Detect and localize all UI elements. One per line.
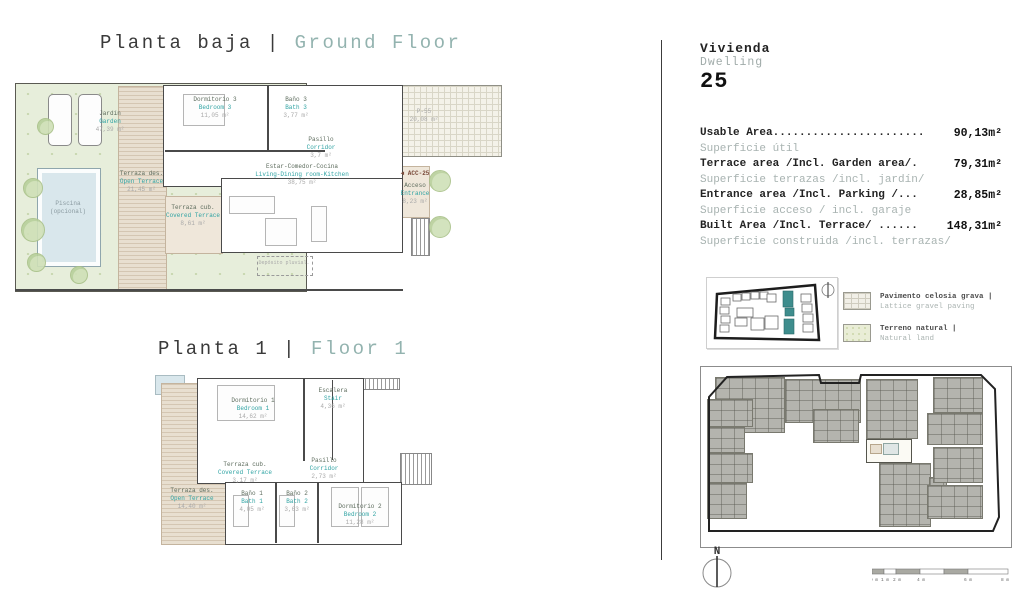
- scale-tick: 6 m: [964, 577, 972, 583]
- brochure-page: Planta baja | Ground Floor: [0, 0, 1024, 592]
- title-separator: |: [253, 32, 295, 54]
- room-label-p55: P-55 20,08 m²: [393, 108, 455, 124]
- building-cluster: [707, 453, 753, 483]
- sofa-furniture: [229, 196, 275, 214]
- railing-top: [360, 378, 400, 390]
- scale-tick: 4 m: [917, 577, 925, 583]
- floor1-plan: Dormitorio 1 Bedroom 1 14,62 m² Escalera…: [155, 375, 437, 547]
- site-plan: [700, 366, 1012, 548]
- ground-floor-title: Planta baja | Ground Floor: [100, 32, 461, 54]
- dwelling-header: Vivienda Dwelling 25: [700, 41, 770, 94]
- legend-item-natural: Terreno natural | Natural land: [843, 324, 1013, 344]
- tree-icon: [37, 118, 54, 135]
- site-wall: [15, 289, 403, 291]
- area-row-es: Superficie construida /incl. terrazas/: [700, 235, 1002, 251]
- room-label-bedroom2: Dormitorio 2 Bedroom 2 11,28 m²: [327, 503, 393, 526]
- room-label-open-terrace: Terraza des. Open Terrace 21,45 m²: [114, 170, 169, 193]
- scale-tick: 0 m: [872, 577, 878, 583]
- title-es: Planta baja: [100, 32, 253, 54]
- room-label-covered-terrace: Terraza cub. Covered Terrace 8,61 m²: [161, 204, 225, 227]
- title-en: Ground Floor: [295, 32, 462, 54]
- room-label-corridor-f1: Pasillo Corridor 2,73 m²: [295, 457, 353, 480]
- scale-tick: 1 m: [881, 577, 889, 583]
- key-plan: [706, 277, 838, 349]
- plant-icon: [27, 253, 46, 272]
- legend: Pavimento celosia grava | Lattice gravel…: [843, 292, 1013, 357]
- room-label-corridor: Pasillo Corridor 3,7 m²: [295, 136, 347, 159]
- room-label-entrance: Acceso Entrance 8,23 m²: [395, 182, 435, 205]
- legend-item-lattice: Pavimento celosia grava | Lattice gravel…: [843, 292, 1013, 312]
- room-label-jardin: Jardín Garden 47,39 m²: [75, 110, 145, 133]
- room-label-stair: Escalera Stair 4,36 m²: [307, 387, 359, 410]
- plant-icon: [21, 218, 45, 242]
- title-en: Floor 1: [311, 338, 408, 360]
- area-row-es: Superficie acceso / incl. garaje: [700, 204, 1002, 220]
- floor1-title: Planta 1 | Floor 1: [158, 338, 408, 360]
- area-row: Terrace area /Incl. Garden area/.79,31m²: [700, 157, 1002, 173]
- building-cluster: [707, 483, 747, 519]
- area-row: Usable Area.......................90,13m…: [700, 126, 1002, 142]
- kitchen-furniture: [311, 206, 327, 242]
- plant-icon: [23, 178, 43, 198]
- building-cluster: [933, 447, 983, 483]
- building-cluster: [866, 379, 918, 439]
- building-cluster: [927, 413, 983, 445]
- wall: [267, 86, 269, 152]
- entrance-railing: [411, 218, 430, 256]
- balcony-railing: [400, 453, 432, 485]
- wall: [317, 483, 319, 543]
- building-cluster: [707, 427, 745, 453]
- room-label-bath1: Baño 1 Bath 1 4,05 m²: [231, 490, 273, 513]
- room-label-living: Estar-Comedor-Cocina Living-Dining room-…: [237, 163, 367, 186]
- table-furniture: [265, 218, 297, 246]
- title-separator: |: [269, 338, 311, 360]
- room-label-open-terrace-f1: Terraza des. Open Terrace 14,40 m²: [161, 487, 223, 510]
- room-label-covered-terrace-f1: Terraza cub. Covered Terrace 3,17 m²: [201, 461, 289, 484]
- wall: [303, 379, 305, 461]
- dwelling-label-en: Dwelling: [700, 56, 770, 69]
- scale-tick: 2 m: [893, 577, 901, 583]
- building-cluster: [933, 377, 983, 413]
- area-row-es: Superficie útil: [700, 142, 1002, 158]
- dwelling-number: 25: [700, 69, 770, 94]
- pool: [37, 168, 101, 267]
- building-cluster: [707, 399, 753, 427]
- plant-icon: [70, 266, 88, 284]
- ground-floor-plan: Jardín Garden 47,39 m² Piscina (opcional…: [15, 78, 511, 294]
- room-label-bath2: Baño 2 Bath 2 3,63 m²: [277, 490, 317, 513]
- acc-25-tag: ◄ ACC-25: [395, 170, 435, 178]
- vertical-divider: [661, 40, 662, 560]
- area-row-es: Superficie terrazas /incl. jardín/: [700, 173, 1002, 189]
- room-label-bedroom3: Dormitorio 3 Bedroom 3 11,05 m²: [175, 96, 255, 119]
- room-label-bath3: Baño 3 Bath 3 3,77 m²: [273, 96, 319, 119]
- area-table: Usable Area.......................90,13m…: [700, 126, 1002, 250]
- dwelling-label-es: Vivienda: [700, 41, 770, 56]
- title-es: Planta 1: [158, 338, 269, 360]
- building-cluster: [927, 485, 983, 519]
- scale-tick: 8 m: [1001, 577, 1009, 583]
- area-row: Built Area /Incl. Terrace/ ......148,31m…: [700, 219, 1002, 235]
- building-cluster: [813, 409, 859, 443]
- area-row: Entrance area /Incl. Parking /...28,85m²: [700, 188, 1002, 204]
- plant-icon: [429, 216, 451, 238]
- rain-tank-label: Depósito pluvial.: [257, 260, 311, 267]
- room-label-bedroom1: Dormitorio 1 Bedroom 1 14,62 m²: [211, 397, 295, 420]
- natural-swatch-icon: [843, 324, 871, 342]
- key-plan-drawing: [707, 278, 837, 348]
- north-arrow-icon: N: [697, 543, 737, 589]
- highlighted-dwelling: [866, 439, 912, 463]
- lattice-swatch-icon: [843, 292, 871, 310]
- building-cluster: [879, 463, 931, 527]
- scale-bar: 0 m 1 m 2 m 4 m 6 m 8 m: [872, 566, 1012, 584]
- room-label-piscina: Piscina (opcional): [38, 200, 98, 216]
